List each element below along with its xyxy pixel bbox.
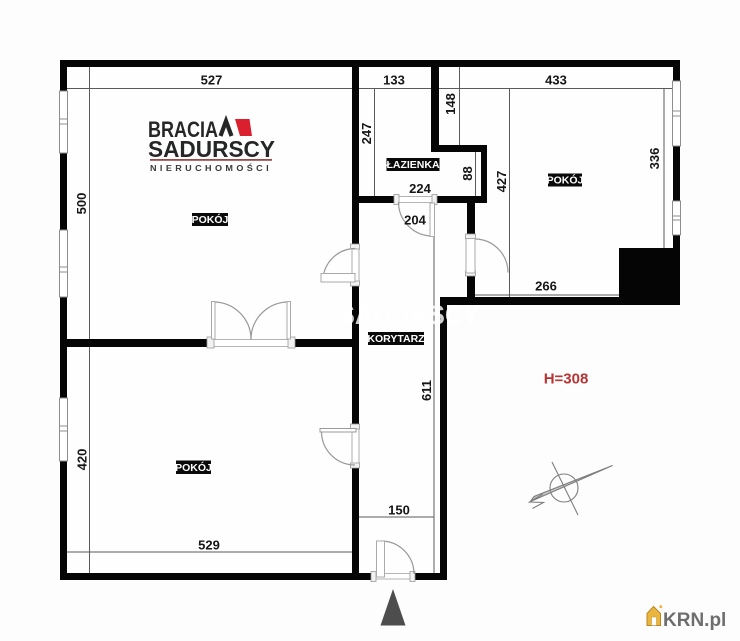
svg-text:336: 336 xyxy=(647,148,662,170)
svg-text:427: 427 xyxy=(494,171,509,193)
svg-text:500: 500 xyxy=(74,193,89,215)
svg-text:420: 420 xyxy=(75,449,90,471)
svg-text:NIERUCHOMOŚCI: NIERUCHOMOŚCI xyxy=(150,164,272,173)
svg-text:247: 247 xyxy=(359,123,374,145)
svg-text:148: 148 xyxy=(443,93,458,115)
svg-text:KRN.pl: KRN.pl xyxy=(663,610,726,631)
svg-text:POKÓJ: POKÓJ xyxy=(175,461,212,474)
svg-text:POKÓJ: POKÓJ xyxy=(547,174,584,187)
svg-text:SADURSCY: SADURSCY xyxy=(148,136,275,162)
svg-text:224: 224 xyxy=(409,181,431,196)
svg-text:SADURSCY: SADURSCY xyxy=(338,300,480,330)
svg-text:204: 204 xyxy=(404,213,426,228)
svg-text:88: 88 xyxy=(460,166,475,180)
svg-text:133: 133 xyxy=(383,73,405,88)
svg-text:433: 433 xyxy=(545,73,567,88)
svg-text:150: 150 xyxy=(388,503,410,518)
svg-text:KORYTARZ: KORYTARZ xyxy=(367,333,425,345)
svg-text:527: 527 xyxy=(201,73,223,88)
svg-text:529: 529 xyxy=(198,538,220,553)
svg-text:266: 266 xyxy=(535,279,557,294)
svg-text:611: 611 xyxy=(419,380,434,401)
svg-text:H=308: H=308 xyxy=(544,371,589,388)
svg-text:ŁAZIENKA: ŁAZIENKA xyxy=(386,159,439,171)
svg-text:POKÓJ: POKÓJ xyxy=(192,213,229,226)
